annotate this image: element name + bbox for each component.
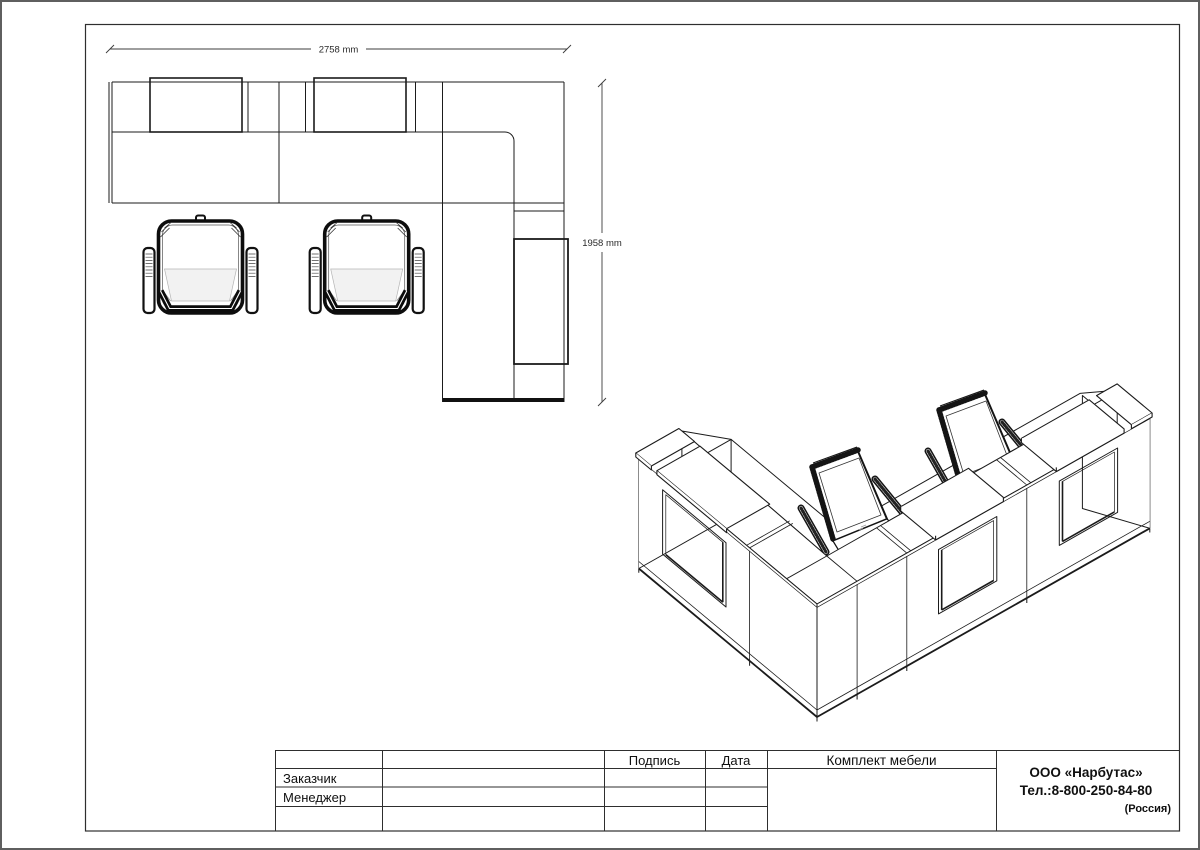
company-name: ООО «Нарбутас»	[999, 765, 1173, 780]
date-header: Дата	[705, 753, 767, 768]
manager-label: Менеджер	[283, 790, 346, 805]
iso-view	[636, 384, 1152, 722]
furniture-set-title: Комплект мебели	[767, 753, 996, 768]
dimension-width-label: 2758 mm	[319, 45, 359, 56]
plan-view	[109, 78, 568, 402]
drawing-sheet: 2758 mm 1958 mm	[0, 0, 1200, 850]
plan-chair-1	[144, 216, 258, 314]
signature-header: Подпись	[604, 753, 705, 768]
dimension-height-label: 1958 mm	[582, 238, 622, 249]
drawing-frame	[86, 25, 1180, 832]
plan-chair-2	[310, 216, 424, 314]
customer-label: Заказчик	[283, 771, 336, 786]
drawing-canvas: 2758 mm 1958 mm	[2, 2, 1200, 850]
company-country: (Россия)	[999, 802, 1171, 817]
company-phone: Тел.:8-800-250-84-80	[999, 783, 1173, 798]
